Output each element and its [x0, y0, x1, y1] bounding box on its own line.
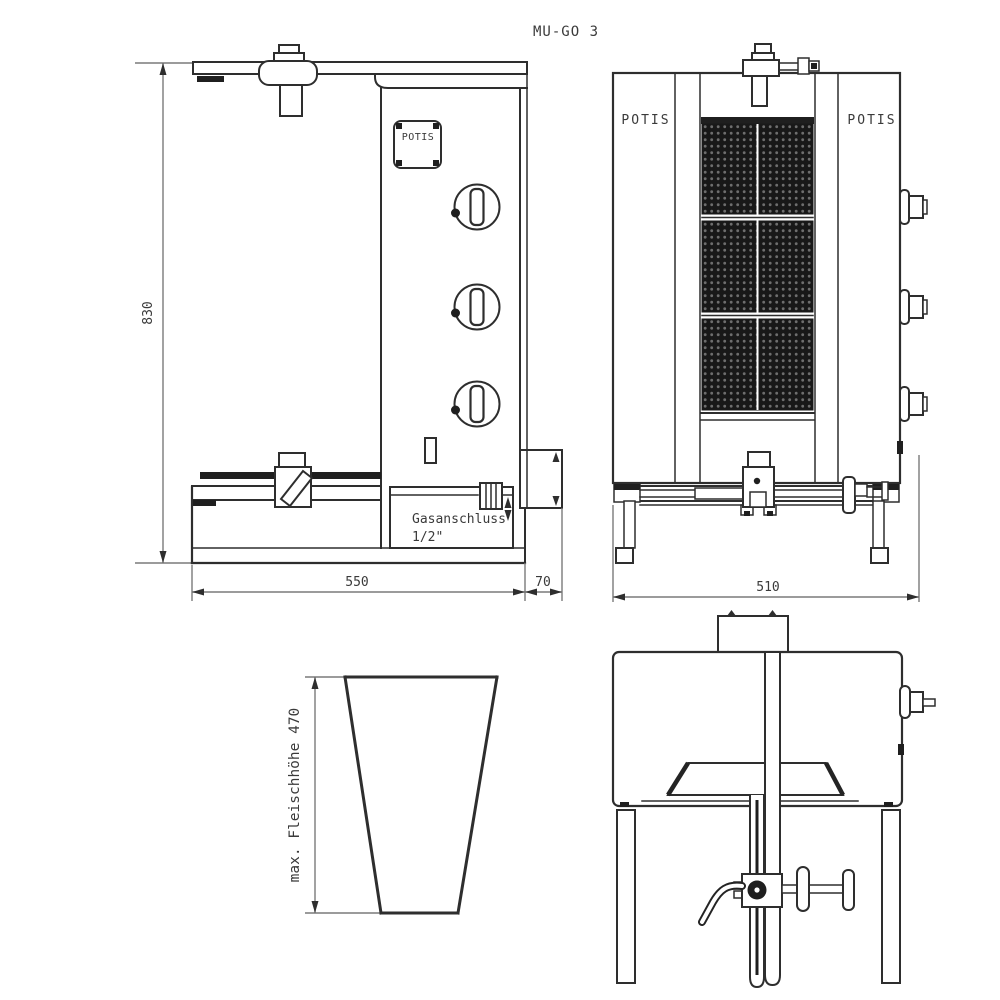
gas-connection: Gasanschluss 1/2": [390, 483, 513, 548]
front-label-left: POTIS: [621, 113, 670, 128]
meat-height-label: max. Fleischhöhe 470: [287, 708, 303, 883]
pilot-slot: [425, 438, 436, 463]
spit-holder-front: [743, 452, 774, 507]
control-knob-2: [451, 285, 500, 330]
side-mark-top: [898, 744, 904, 755]
dim-height-830: 830: [135, 63, 193, 563]
front-view: POTIS POTIS: [613, 44, 927, 602]
technical-drawing-page: MU-GO 3 830: [0, 0, 1000, 1000]
meat-size-diagram: max. Fleischhöhe 470: [287, 677, 497, 913]
front-label-right: POTIS: [847, 113, 896, 128]
drawing-title: MU-GO 3: [533, 24, 599, 40]
dim-label-70: 70: [535, 575, 551, 590]
t-screw: [782, 867, 854, 911]
motor-box-top: [718, 610, 788, 653]
top-arm: [193, 62, 527, 82]
gas-label-line2: 1/2": [412, 530, 443, 545]
side-view: 830 POTIS: [135, 45, 562, 601]
dim-label-550: 550: [345, 575, 368, 590]
knob-top: [900, 686, 935, 718]
top-view: [613, 610, 935, 987]
dim-meat-height: max. Fleischhöhe 470: [287, 677, 319, 913]
control-knob-3: [451, 382, 500, 427]
logo-text: POTIS: [402, 132, 435, 143]
rear-gas-box: [520, 450, 562, 508]
knob-front-1: [900, 190, 927, 224]
dim-label-510: 510: [756, 580, 779, 595]
logo-plate: POTIS: [394, 121, 441, 168]
skewer-catcher: [275, 453, 312, 507]
gas-label-line1: Gasanschluss: [412, 512, 506, 527]
control-knob-1: [451, 185, 500, 230]
gas-inlet-mark: [897, 441, 903, 454]
drawing-canvas: MU-GO 3 830: [0, 0, 1000, 1000]
burner-assembly: [701, 117, 814, 420]
knob-front-3: [900, 387, 927, 421]
dim-label-830: 830: [141, 301, 156, 324]
knob-front-2: [900, 290, 927, 324]
motor-side: [259, 45, 317, 116]
